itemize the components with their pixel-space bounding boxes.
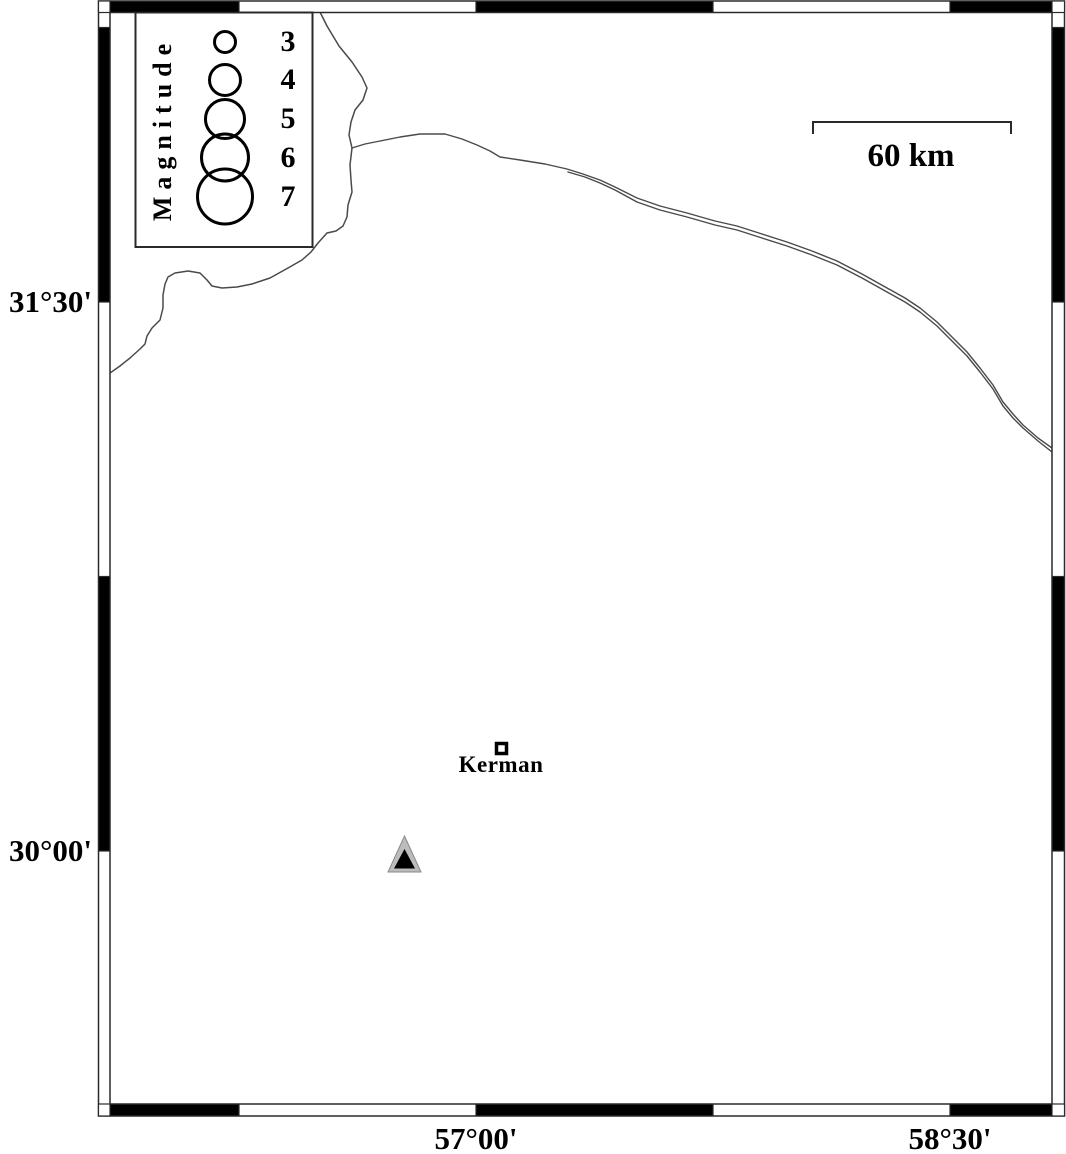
- legend-title: Magnitude: [146, 24, 180, 234]
- lat-label-30-00: 30°00': [0, 830, 92, 872]
- legend-value-3: 3: [266, 21, 310, 63]
- scale-bar-label: 60 km: [826, 136, 996, 176]
- legend-value-7: 7: [266, 176, 310, 218]
- seismicity-map: 31°30' 30°00' 57°00' 58°30' Magnitude 3 …: [0, 0, 1066, 1154]
- road-line-lower: [568, 172, 1052, 452]
- frame-segment: [1052, 577, 1065, 852]
- frame-segment: [1052, 28, 1065, 303]
- legend-value-6: 6: [266, 137, 310, 179]
- city-label-kerman: Kerman: [431, 752, 571, 778]
- frame-segment: [950, 1, 1052, 12]
- frame-corner: [1052, 1, 1065, 13]
- frame-segment: [476, 1, 713, 12]
- legend-value-5: 5: [266, 98, 310, 140]
- frame-corner: [99, 1104, 111, 1116]
- frame-segment: [950, 1104, 1052, 1116]
- frame-corner: [99, 1, 111, 13]
- frame-segment: [99, 577, 111, 852]
- frame-segment: [99, 28, 111, 303]
- frame-corner: [1052, 1104, 1065, 1116]
- frame-segment: [110, 1, 239, 12]
- lon-label-58-30: 58°30': [870, 1119, 1030, 1154]
- frame-segment: [110, 1104, 239, 1116]
- scale-bar-bracket: [813, 122, 1011, 134]
- lat-label-31-30: 31°30': [0, 281, 92, 323]
- road-line-upper: [352, 134, 1052, 448]
- lon-label-57-00: 57°00': [396, 1119, 556, 1154]
- frame-segment: [476, 1104, 713, 1116]
- legend-value-4: 4: [266, 59, 310, 101]
